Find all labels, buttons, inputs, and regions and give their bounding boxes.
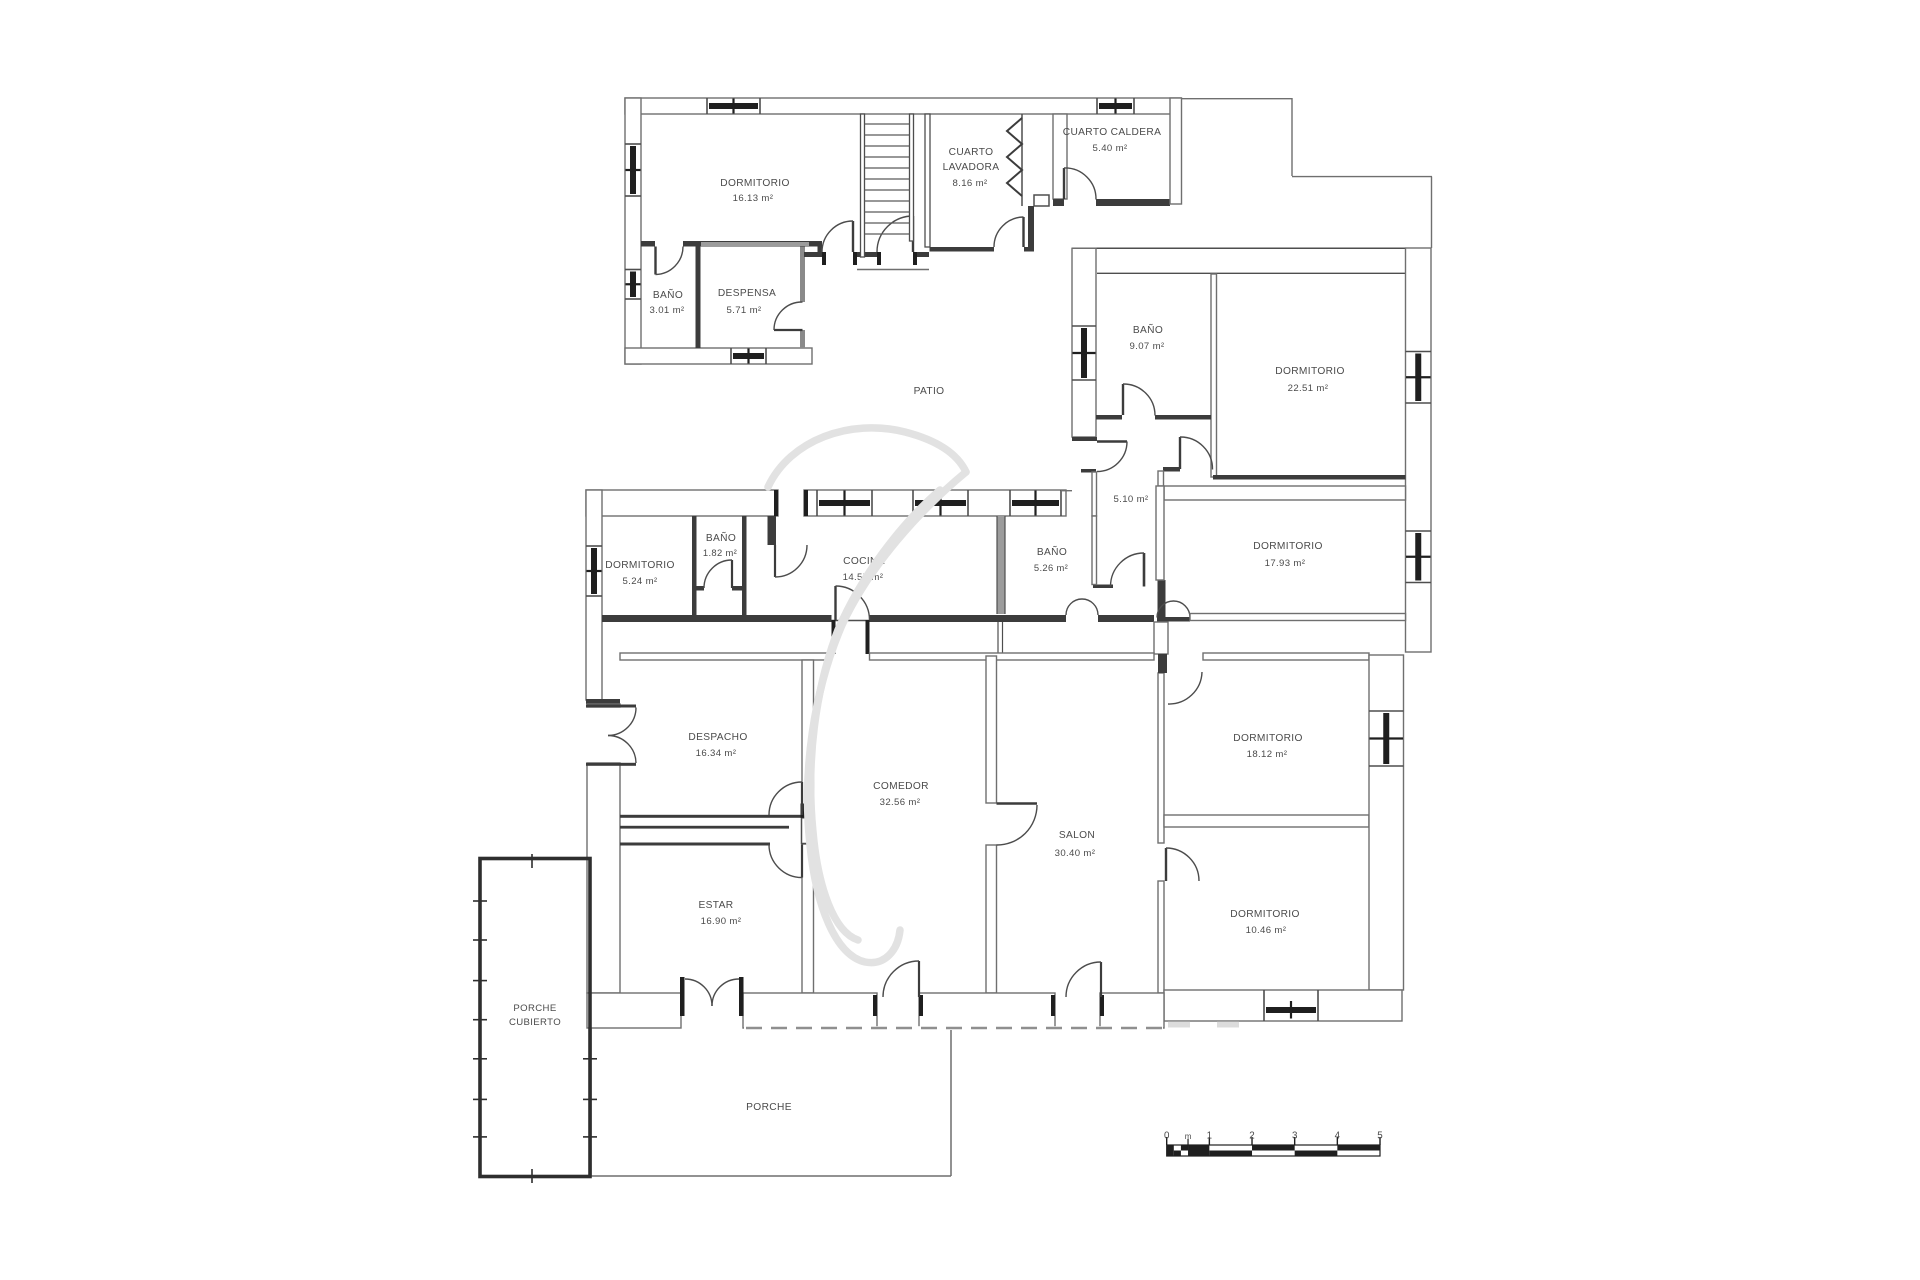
svg-text:1.82 m²: 1.82 m² bbox=[703, 547, 737, 558]
svg-text:LAVADORA: LAVADORA bbox=[943, 162, 1000, 173]
svg-text:BAÑO: BAÑO bbox=[706, 531, 736, 544]
svg-text:16.34 m²: 16.34 m² bbox=[696, 748, 737, 759]
svg-text:16.90 m²: 16.90 m² bbox=[701, 916, 742, 927]
svg-text:3.01 m²: 3.01 m² bbox=[650, 305, 685, 316]
svg-text:COMEDOR: COMEDOR bbox=[873, 781, 929, 792]
svg-text:32.56 m²: 32.56 m² bbox=[880, 797, 921, 808]
svg-text:DORMITORIO: DORMITORIO bbox=[720, 178, 790, 189]
svg-text:PORCHE: PORCHE bbox=[513, 1003, 556, 1014]
svg-text:5.10 m²: 5.10 m² bbox=[1114, 494, 1149, 505]
svg-text:3: 3 bbox=[1292, 1131, 1298, 1142]
svg-text:30.40 m²: 30.40 m² bbox=[1055, 848, 1096, 859]
svg-text:17.93 m²: 17.93 m² bbox=[1265, 558, 1306, 569]
svg-text:4: 4 bbox=[1335, 1131, 1341, 1142]
svg-text:CUARTO: CUARTO bbox=[949, 147, 994, 158]
svg-text:DORMITORIO: DORMITORIO bbox=[1230, 909, 1300, 920]
svg-text:5.26 m²: 5.26 m² bbox=[1034, 562, 1068, 573]
svg-text:DORMITORIO: DORMITORIO bbox=[1275, 366, 1345, 377]
svg-text:18.12 m²: 18.12 m² bbox=[1247, 749, 1288, 760]
svg-text:5: 5 bbox=[1377, 1131, 1383, 1142]
svg-text:22.51 m²: 22.51 m² bbox=[1288, 383, 1329, 394]
svg-text:SALON: SALON bbox=[1059, 830, 1095, 841]
svg-text:CUARTO CALDERA: CUARTO CALDERA bbox=[1063, 127, 1162, 138]
svg-text:2: 2 bbox=[1249, 1131, 1254, 1142]
svg-text:DESPACHO: DESPACHO bbox=[688, 732, 747, 743]
svg-text:9.07 m²: 9.07 m² bbox=[1130, 341, 1165, 352]
svg-text:BAÑO: BAÑO bbox=[653, 288, 683, 301]
svg-text:5.40 m²: 5.40 m² bbox=[1093, 143, 1128, 154]
svg-text:DORMITORIO: DORMITORIO bbox=[1253, 541, 1323, 552]
svg-text:0: 0 bbox=[1164, 1131, 1170, 1142]
svg-text:BAÑO: BAÑO bbox=[1133, 323, 1163, 336]
svg-text:PORCHE: PORCHE bbox=[746, 1102, 792, 1113]
svg-text:PATIO: PATIO bbox=[914, 386, 945, 397]
svg-text:10.46 m²: 10.46 m² bbox=[1246, 925, 1287, 936]
svg-text:5.24 m²: 5.24 m² bbox=[623, 576, 658, 587]
svg-text:DORMITORIO: DORMITORIO bbox=[605, 560, 675, 571]
svg-text:DESPENSA: DESPENSA bbox=[718, 288, 776, 299]
svg-text:5.71 m²: 5.71 m² bbox=[727, 305, 762, 316]
svg-text:CUBIERTO: CUBIERTO bbox=[509, 1017, 561, 1028]
svg-text:DORMITORIO: DORMITORIO bbox=[1233, 733, 1303, 744]
svg-text:m: m bbox=[1185, 1132, 1192, 1141]
svg-text:16.13 m²: 16.13 m² bbox=[733, 193, 774, 204]
svg-text:8.16 m²: 8.16 m² bbox=[953, 178, 988, 189]
svg-text:BAÑO: BAÑO bbox=[1037, 545, 1067, 558]
svg-text:ESTAR: ESTAR bbox=[699, 900, 734, 911]
svg-text:1: 1 bbox=[1207, 1131, 1212, 1142]
